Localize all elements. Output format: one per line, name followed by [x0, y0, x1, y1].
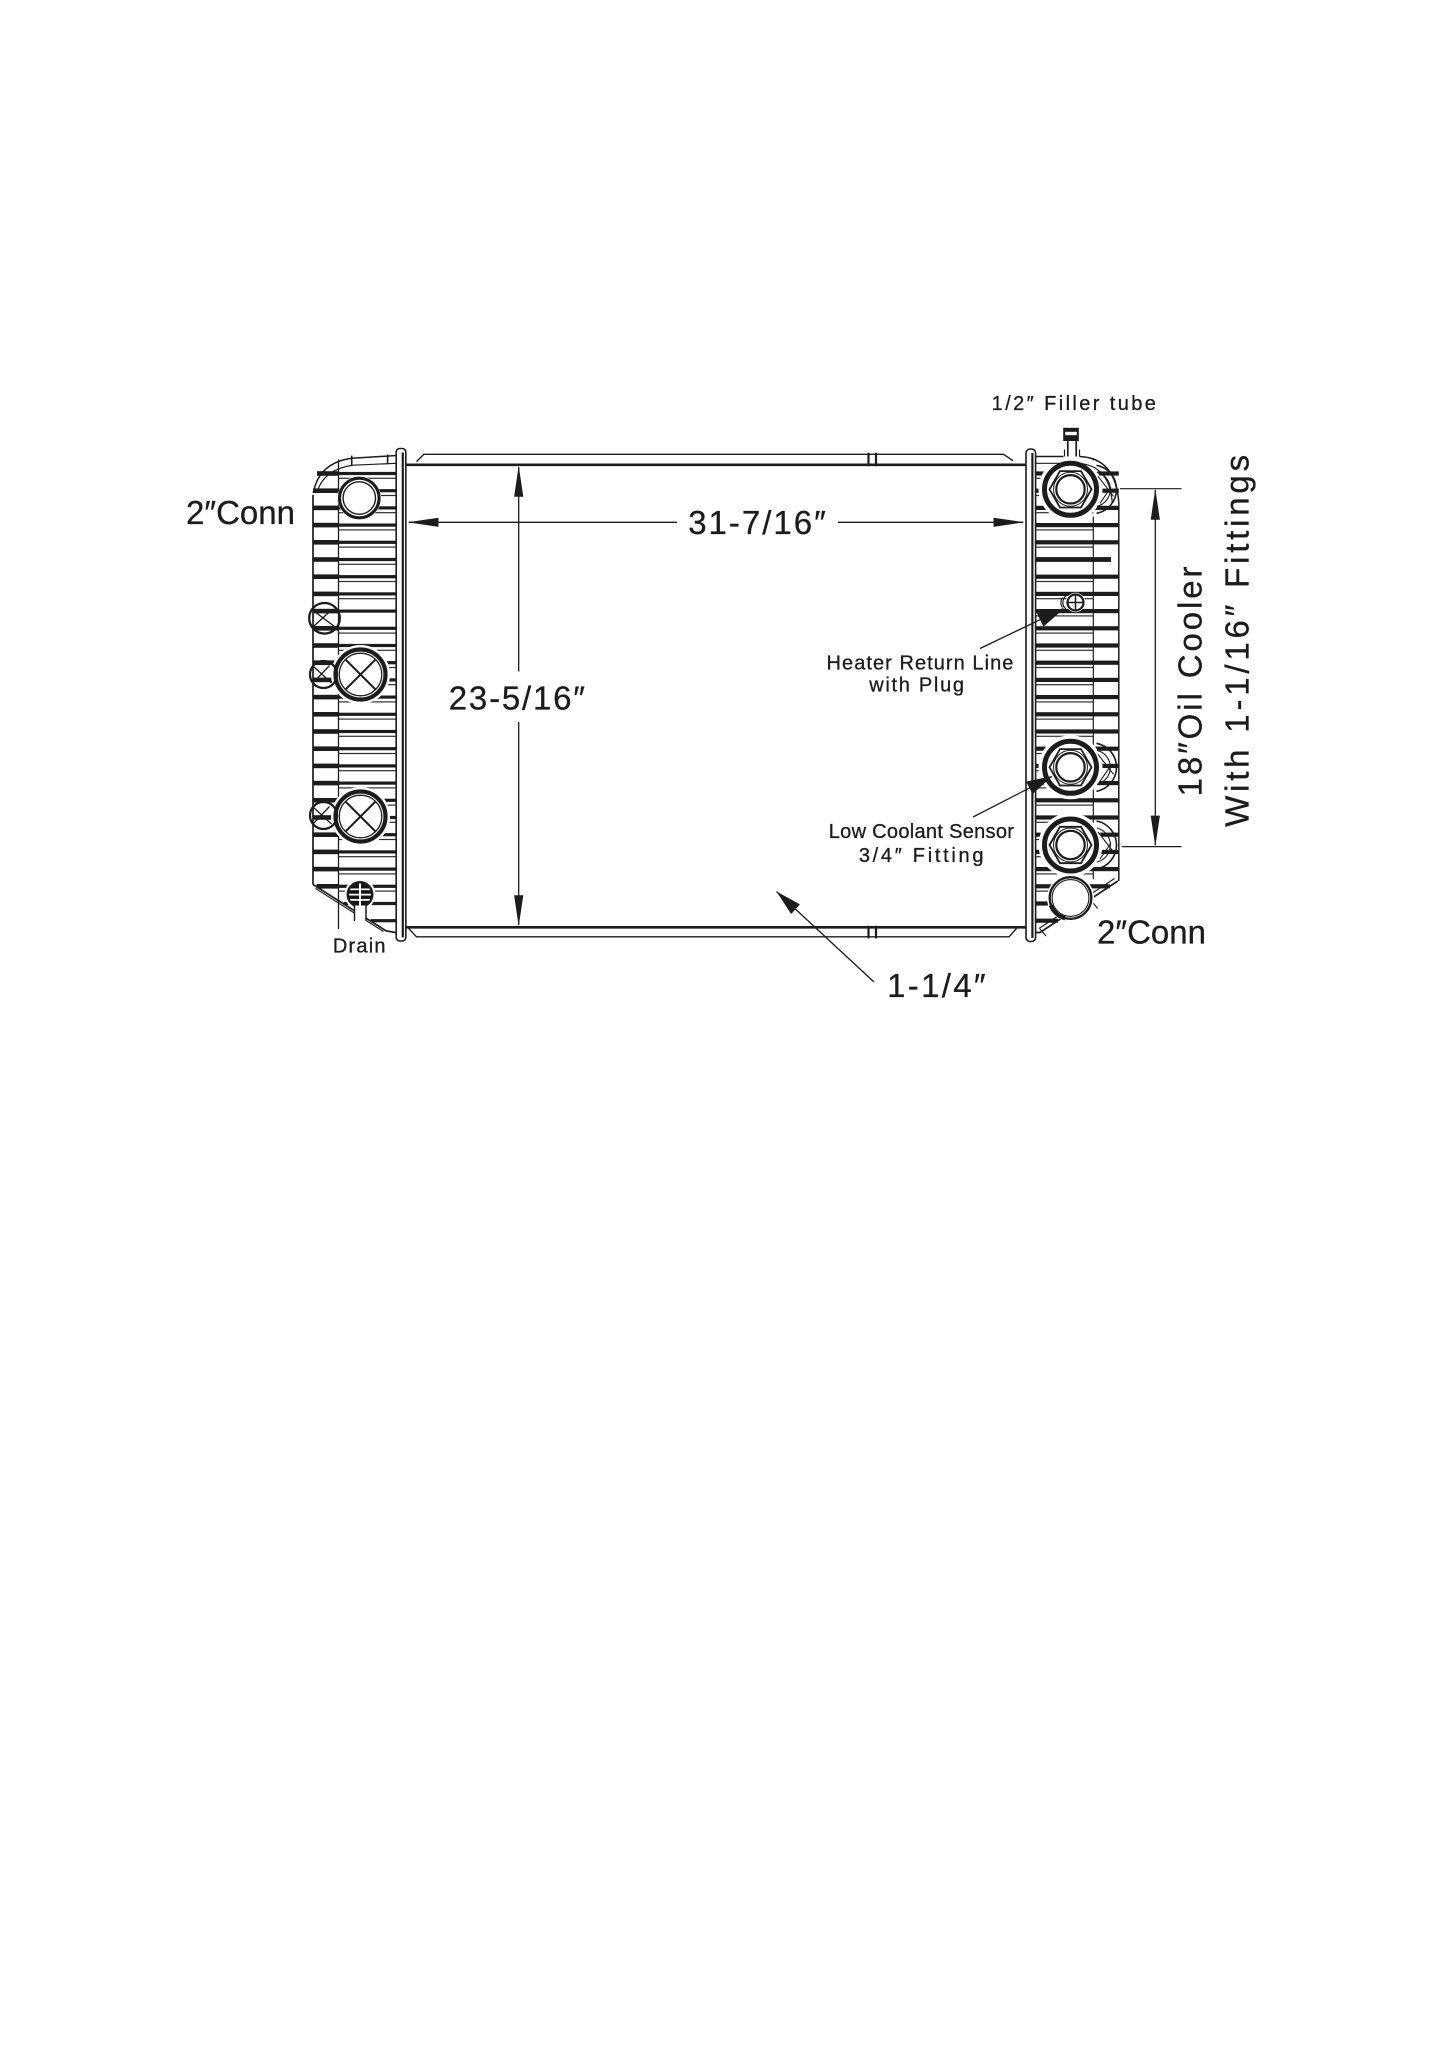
- svg-text:2″Conn: 2″Conn: [186, 494, 295, 531]
- svg-text:Heater Return Line: Heater Return Line: [827, 653, 1015, 675]
- svg-text:1/2″ Filler tube: 1/2″ Filler tube: [992, 393, 1159, 415]
- svg-text:Low Coolant Sensor: Low Coolant Sensor: [829, 821, 1015, 843]
- svg-text:31-7/16″: 31-7/16″: [688, 504, 828, 541]
- svg-text:3/4″ Fitting: 3/4″ Fitting: [859, 845, 986, 867]
- svg-text:18″Oil Cooler: 18″Oil Cooler: [1172, 564, 1209, 797]
- svg-text:1-1/4″: 1-1/4″: [887, 967, 988, 1004]
- svg-text:With 1-1/16″ Fittings: With 1-1/16″ Fittings: [1219, 451, 1256, 827]
- svg-text:Drain: Drain: [333, 936, 387, 958]
- svg-text:23-5/16″: 23-5/16″: [449, 680, 587, 717]
- svg-text:with Plug: with Plug: [868, 675, 965, 697]
- svg-text:2″Conn: 2″Conn: [1097, 914, 1206, 951]
